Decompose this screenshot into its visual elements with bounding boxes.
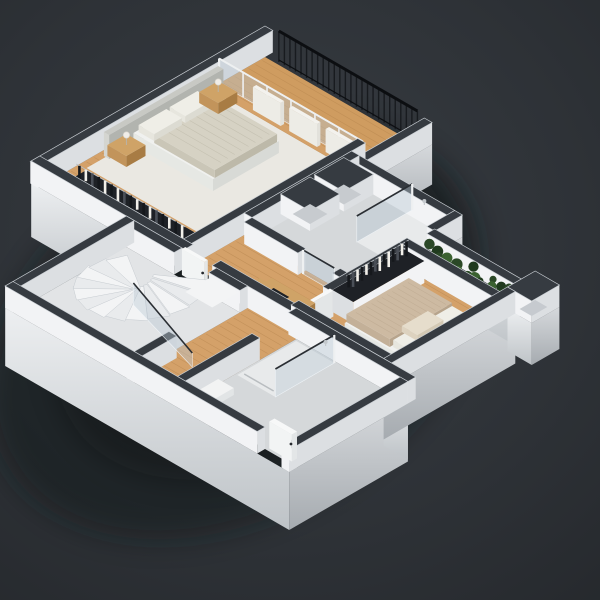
door-handle	[201, 272, 204, 275]
floor-plan-render	[0, 0, 600, 600]
door-handle	[290, 443, 293, 446]
floor-plan-viewport	[0, 0, 600, 600]
